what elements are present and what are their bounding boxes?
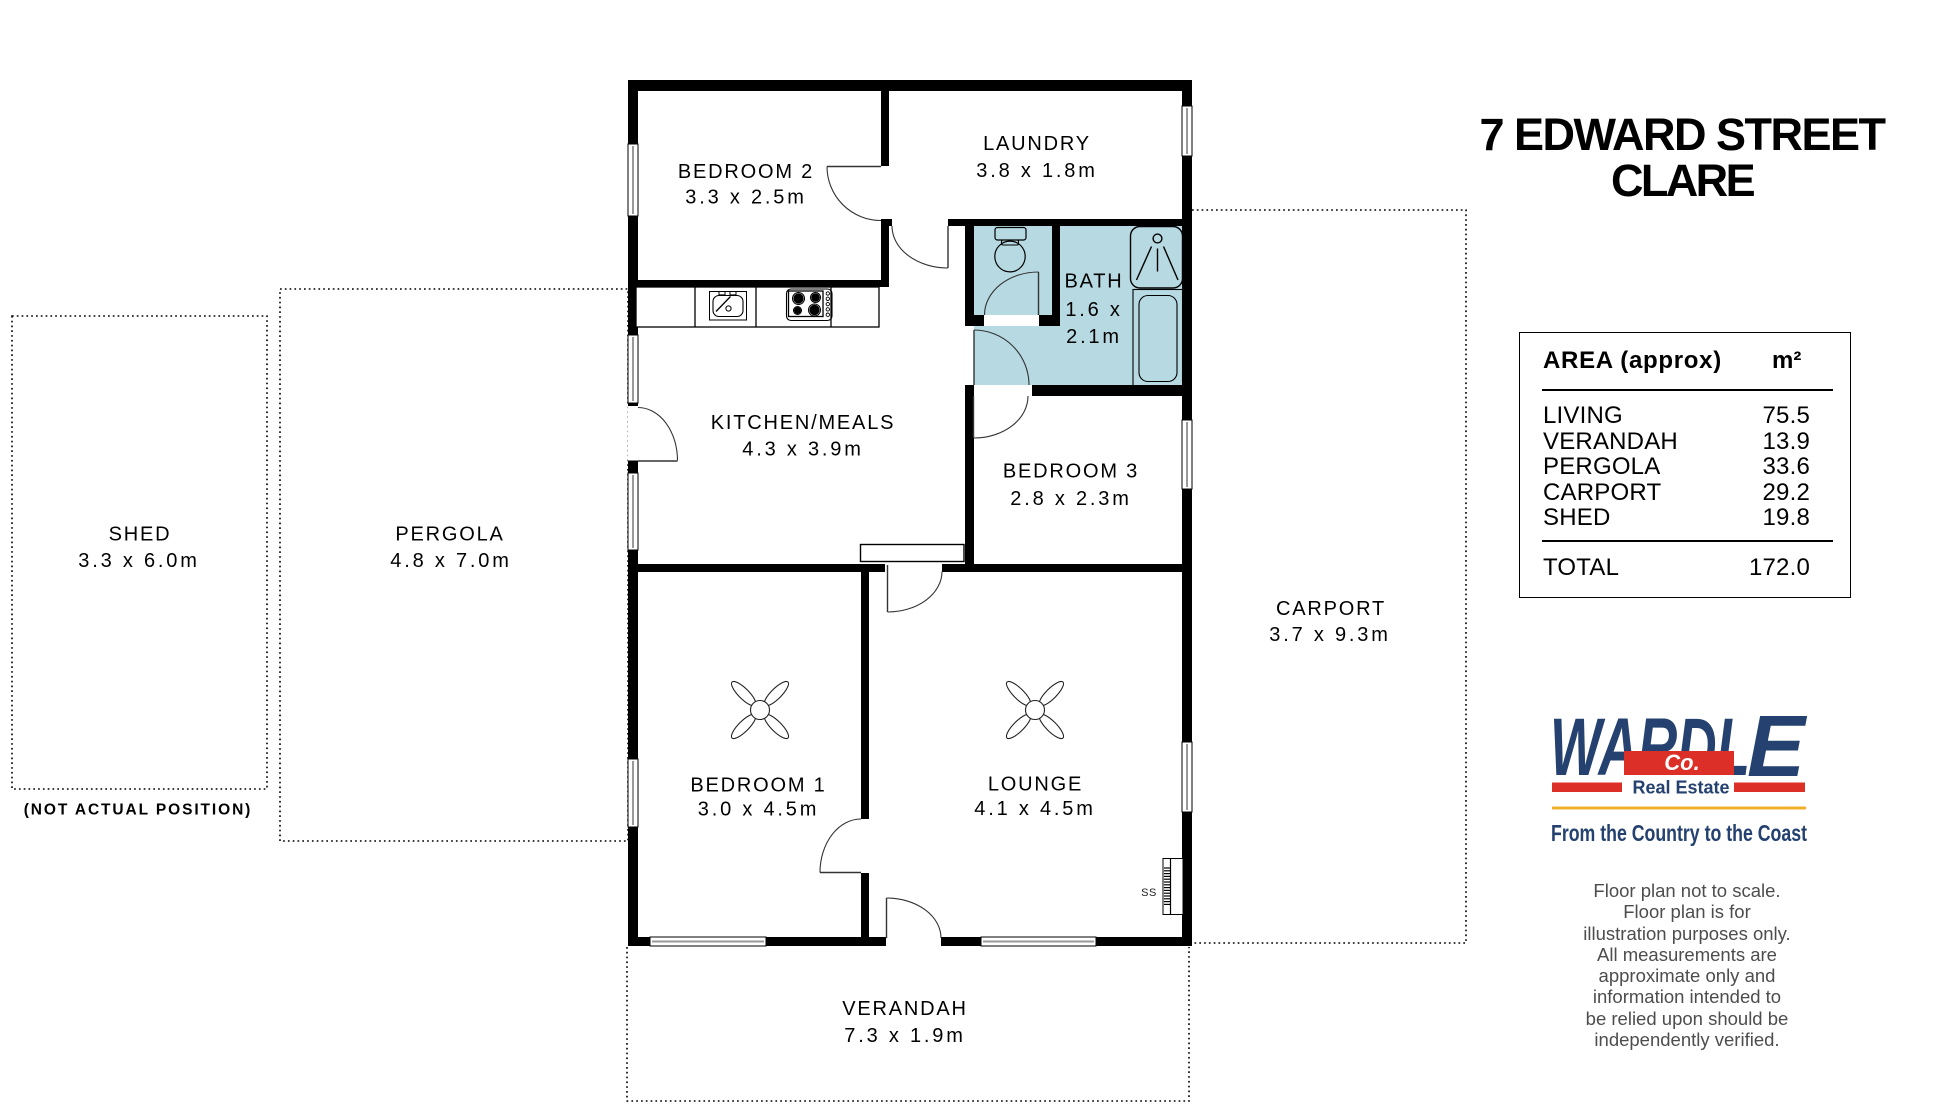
svg-text:3.7 x 9.3m: 3.7 x 9.3m (1269, 624, 1390, 646)
svg-text:3.8 x 1.8m: 3.8 x 1.8m (976, 160, 1097, 182)
svg-text:Real Estate: Real Estate (1632, 778, 1729, 798)
svg-text:1.6 x: 1.6 x (1065, 299, 1122, 321)
svg-text:(NOT ACTUAL POSITION): (NOT ACTUAL POSITION) (24, 802, 252, 819)
svg-text:2.1m: 2.1m (1066, 326, 1122, 348)
svg-text:BEDROOM 1: BEDROOM 1 (690, 775, 826, 797)
svg-text:4.3 x 3.9m: 4.3 x 3.9m (742, 439, 863, 461)
svg-text:BEDROOM 2: BEDROOM 2 (678, 161, 814, 183)
svg-text:LAUNDRY: LAUNDRY (983, 133, 1091, 155)
svg-text:BATH: BATH (1064, 271, 1123, 293)
svg-text:3.3 x 2.5m: 3.3 x 2.5m (685, 187, 806, 209)
svg-text:3.3 x 6.0m: 3.3 x 6.0m (78, 550, 199, 572)
svg-text:E: E (1747, 710, 1808, 795)
svg-text:From the Country to the Coast: From the Country to the Coast (1551, 820, 1807, 846)
svg-text:BEDROOM 3: BEDROOM 3 (1003, 461, 1139, 483)
svg-text:2.8 x 2.3m: 2.8 x 2.3m (1010, 488, 1131, 510)
svg-text:7.3 x 1.9m: 7.3 x 1.9m (844, 1025, 965, 1047)
svg-text:4.8 x 7.0m: 4.8 x 7.0m (390, 550, 511, 572)
svg-text:3.0 x 4.5m: 3.0 x 4.5m (698, 799, 819, 821)
svg-text:VERANDAH: VERANDAH (842, 998, 968, 1020)
svg-text:PERGOLA: PERGOLA (395, 524, 504, 546)
svg-text:CARPORT: CARPORT (1276, 598, 1386, 620)
svg-text:4.1 x 4.5m: 4.1 x 4.5m (974, 798, 1095, 820)
svg-text:KITCHEN/MEALS: KITCHEN/MEALS (711, 412, 896, 434)
svg-text:SS: SS (1141, 887, 1157, 899)
svg-text:LOUNGE: LOUNGE (988, 774, 1083, 796)
svg-text:SHED: SHED (109, 524, 172, 546)
svg-text:Co.: Co. (1664, 750, 1699, 775)
